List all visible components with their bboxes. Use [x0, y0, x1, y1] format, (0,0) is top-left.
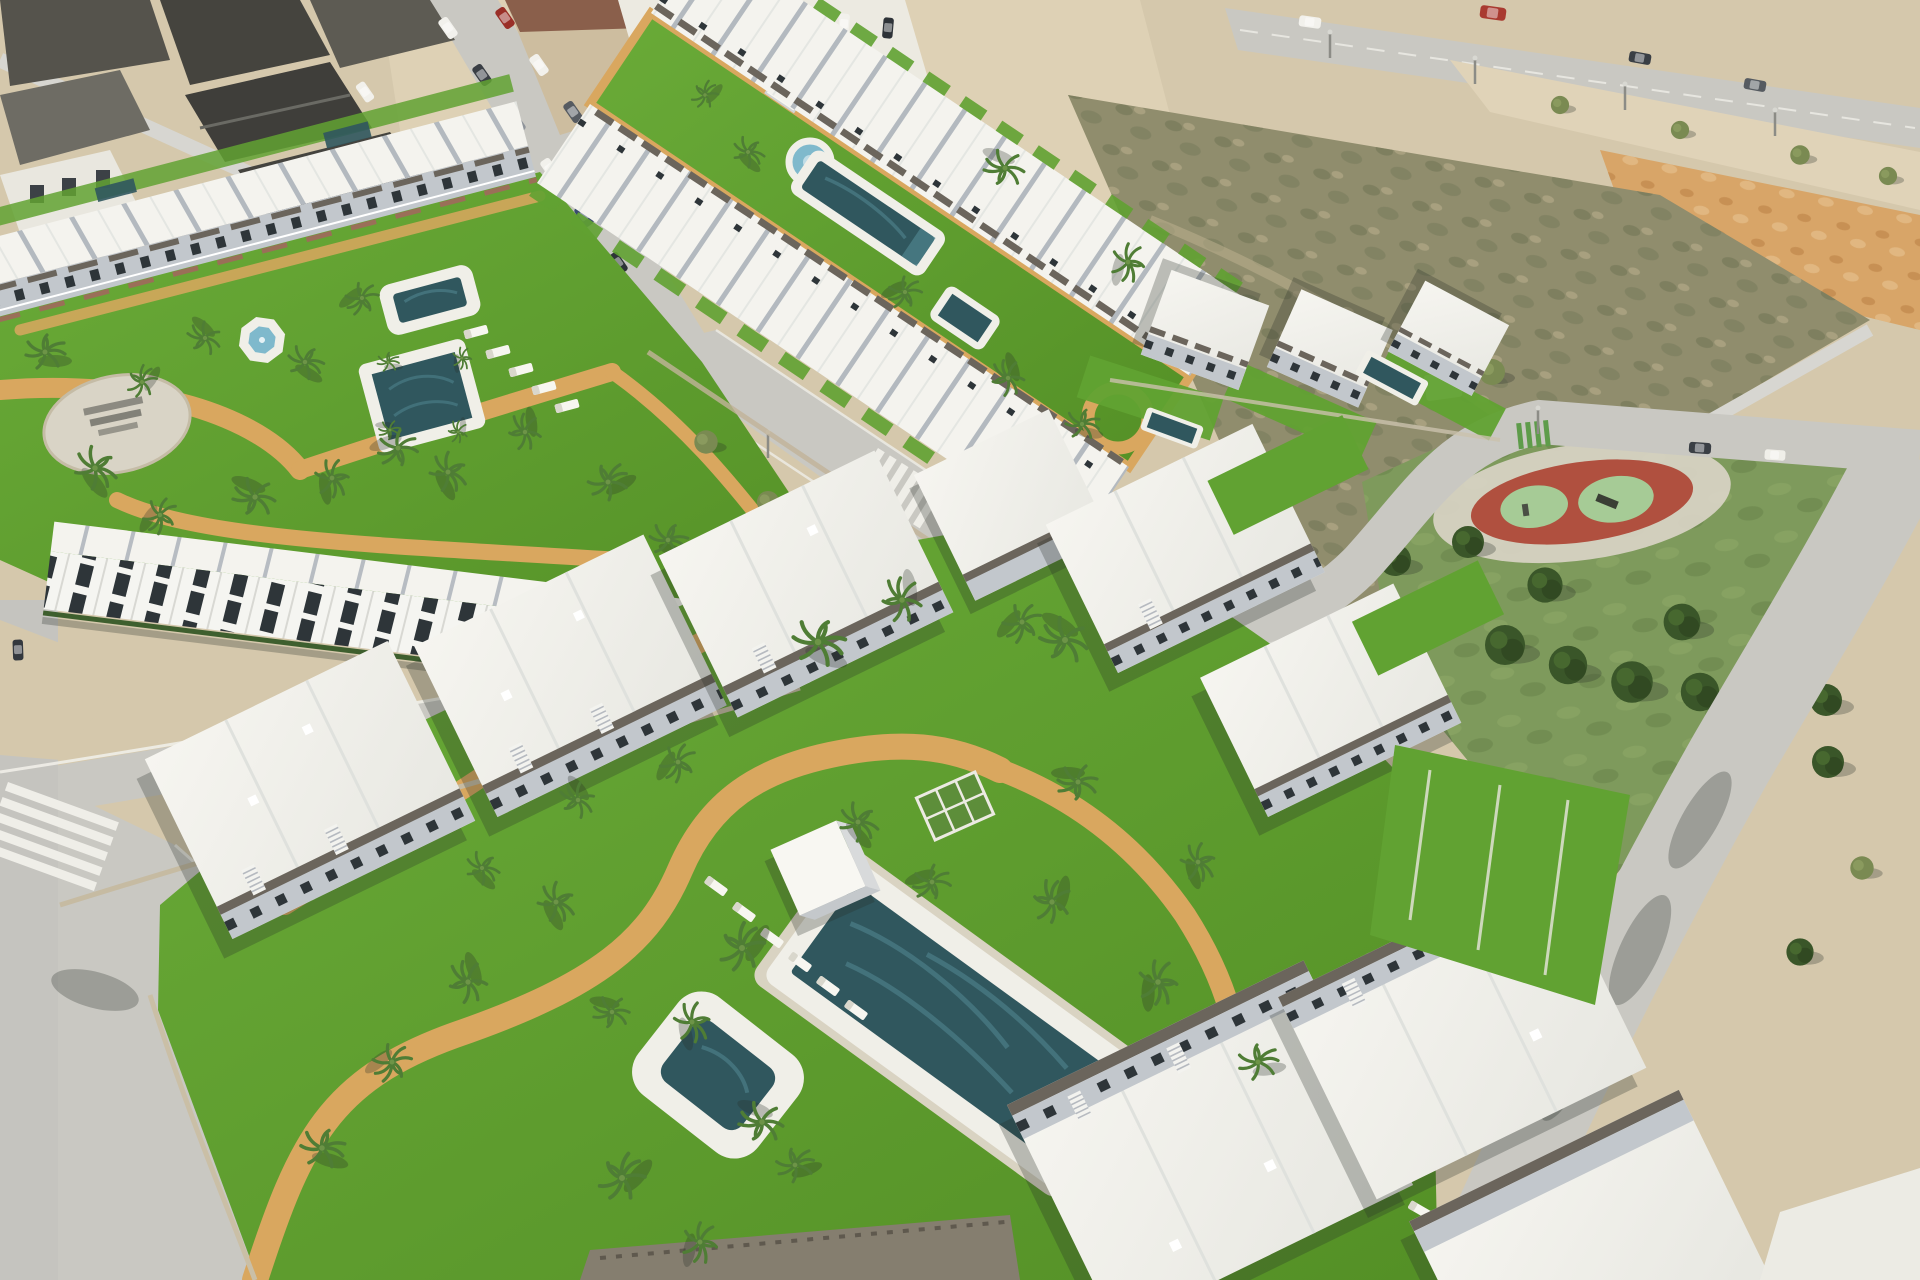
parked-car — [12, 639, 23, 660]
white-car — [1764, 449, 1785, 461]
aerial-render — [0, 0, 1920, 1280]
dark-car — [1689, 442, 1712, 455]
